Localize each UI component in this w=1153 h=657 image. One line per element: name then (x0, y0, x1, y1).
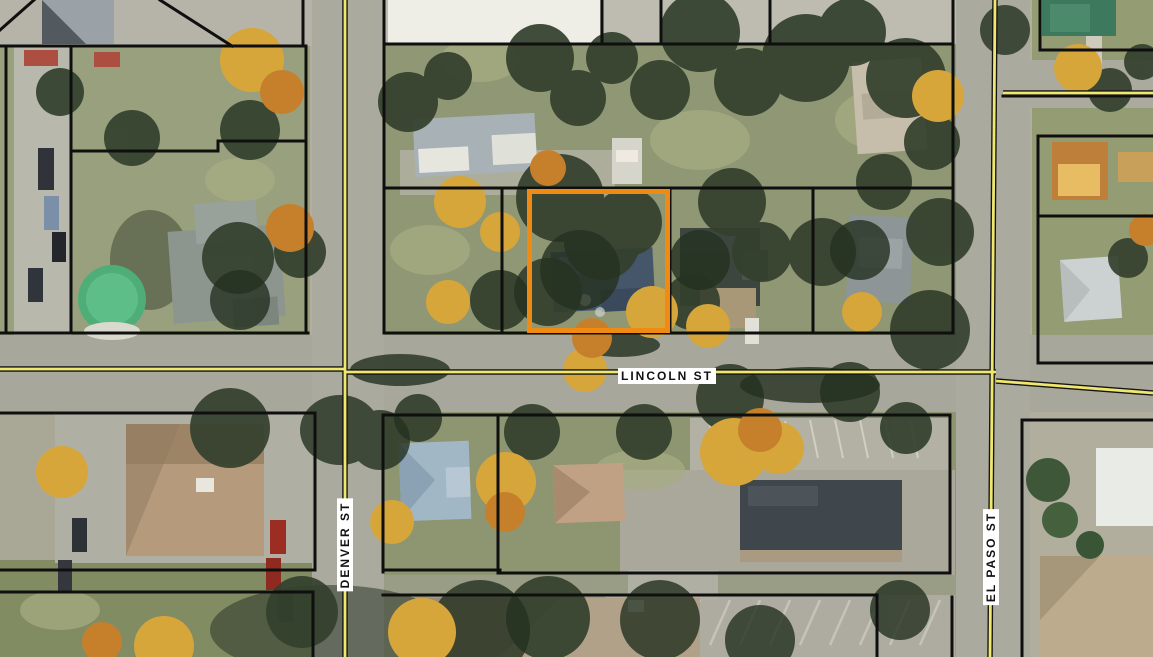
street-label-lincoln: LINCOLN ST (618, 368, 716, 384)
selected-parcel-highlight[interactable] (527, 189, 670, 333)
street-label-el-paso: EL PASO ST (983, 509, 999, 605)
map-canvas[interactable]: LINCOLN ST DENVER ST EL PASO ST (0, 0, 1153, 657)
street-label-denver: DENVER ST (337, 499, 353, 592)
